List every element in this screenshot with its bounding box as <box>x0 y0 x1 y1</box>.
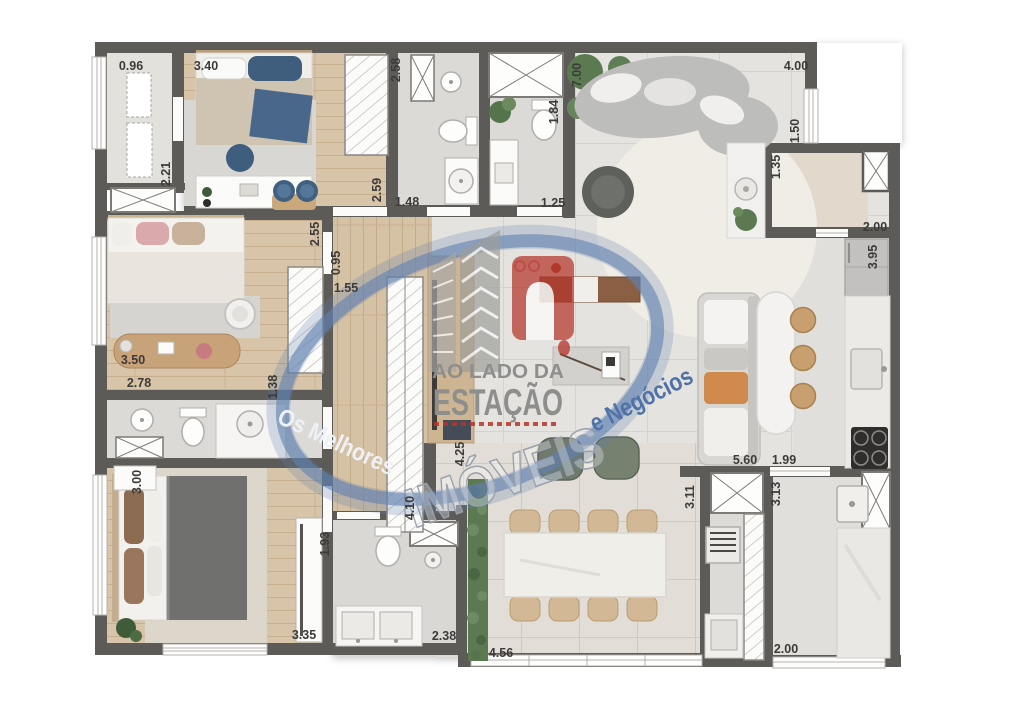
floor-plan-page: AO LADO DA ESTAÇÃO IMÓVEIS Os Melhores e… <box>0 0 1024 712</box>
shaft-hall <box>863 151 889 191</box>
dim-label: 2.21 <box>159 162 173 186</box>
dim-label: 1.25 <box>541 196 565 210</box>
dim-label: 2.58 <box>389 58 403 82</box>
dim-label: 3.35 <box>292 628 316 642</box>
dim-label: 2.59 <box>370 178 384 202</box>
window-laundry <box>773 657 885 668</box>
shaft-service <box>711 473 763 513</box>
dim-label: 2.00 <box>774 642 798 656</box>
chair-bedroom2 <box>225 299 255 329</box>
dim-label: 4.56 <box>489 646 513 660</box>
straight-sofa <box>698 293 760 465</box>
dim-label: 2.00 <box>863 220 887 234</box>
faucet <box>881 366 887 372</box>
wall-bedroom2-bath3 <box>95 390 333 400</box>
pantry-shelves <box>127 73 152 177</box>
dim-label: 1.84 <box>547 100 561 124</box>
dim-label: 4.10 <box>403 496 417 520</box>
watermark-brand-line2: ESTAÇÃO <box>433 381 563 423</box>
watermark-brand-line1: AO LADO DA <box>432 361 564 383</box>
dining-table <box>504 533 666 597</box>
dim-label: 1.38 <box>266 375 280 399</box>
door-entrance <box>816 229 848 237</box>
floor-plan-svg: AO LADO DA ESTAÇÃO IMÓVEIS Os Melhores e… <box>0 0 1024 712</box>
stool-1 <box>791 308 816 333</box>
shaft-pantry <box>111 188 175 212</box>
dim-label: 3.11 <box>683 485 697 509</box>
shaft-bath2 <box>489 53 563 97</box>
window-master-bottom <box>163 644 267 655</box>
cabinet-service <box>744 514 764 660</box>
dim-label: 1.50 <box>788 119 802 143</box>
armchair-living <box>582 166 634 218</box>
shower-bath1 <box>411 55 434 101</box>
bar-counter <box>727 143 765 238</box>
bed-master <box>112 474 247 622</box>
cooktop <box>851 427 888 469</box>
door-service-slider <box>770 467 830 476</box>
dim-label: 1.35 <box>769 155 783 179</box>
window-master <box>93 475 107 615</box>
dim-label: 3.50 <box>121 353 145 367</box>
tub-bath3 <box>116 437 163 458</box>
window-living-right <box>804 89 818 143</box>
window-bedroom2 <box>92 237 106 345</box>
dim-label: 2.38 <box>432 629 456 643</box>
dim-label: 3.00 <box>130 470 144 494</box>
dim-label: 3.13 <box>769 482 783 506</box>
dim-label: 1.55 <box>334 281 358 295</box>
stool-2 <box>791 346 816 371</box>
dim-label: 1.93 <box>318 532 332 556</box>
dim-label: 2.55 <box>308 222 322 246</box>
double-vanity <box>336 606 422 646</box>
dim-label: 5.60 <box>733 453 757 467</box>
dim-label: 4.00 <box>784 59 808 73</box>
door-pantry <box>173 97 183 141</box>
dim-label: 2.78 <box>127 376 151 390</box>
window-pantry <box>92 57 106 149</box>
stool-3 <box>791 384 816 409</box>
outside-corner <box>816 43 902 143</box>
dim-label: 0.95 <box>329 251 343 275</box>
dim-label: 3.95 <box>866 245 880 269</box>
dim-label: 1.99 <box>772 453 796 467</box>
wardrobe-bedroom1 <box>345 55 388 155</box>
door-bedroom1 <box>333 207 387 216</box>
door-masterbath <box>337 512 380 519</box>
dim-label: 4.25 <box>453 442 467 466</box>
dim-label: 3.40 <box>194 59 218 73</box>
wall-right <box>889 143 900 667</box>
kitchen-counter <box>845 296 890 469</box>
dim-label: 7.00 <box>570 63 584 87</box>
kitchen-sink <box>851 349 882 389</box>
door-bathroom1 <box>427 207 470 216</box>
dim-label: 0.96 <box>119 59 143 73</box>
dim-label: 1.48 <box>395 195 419 209</box>
bed-bedroom2 <box>108 215 244 303</box>
chair-bedroom1 <box>226 144 254 172</box>
